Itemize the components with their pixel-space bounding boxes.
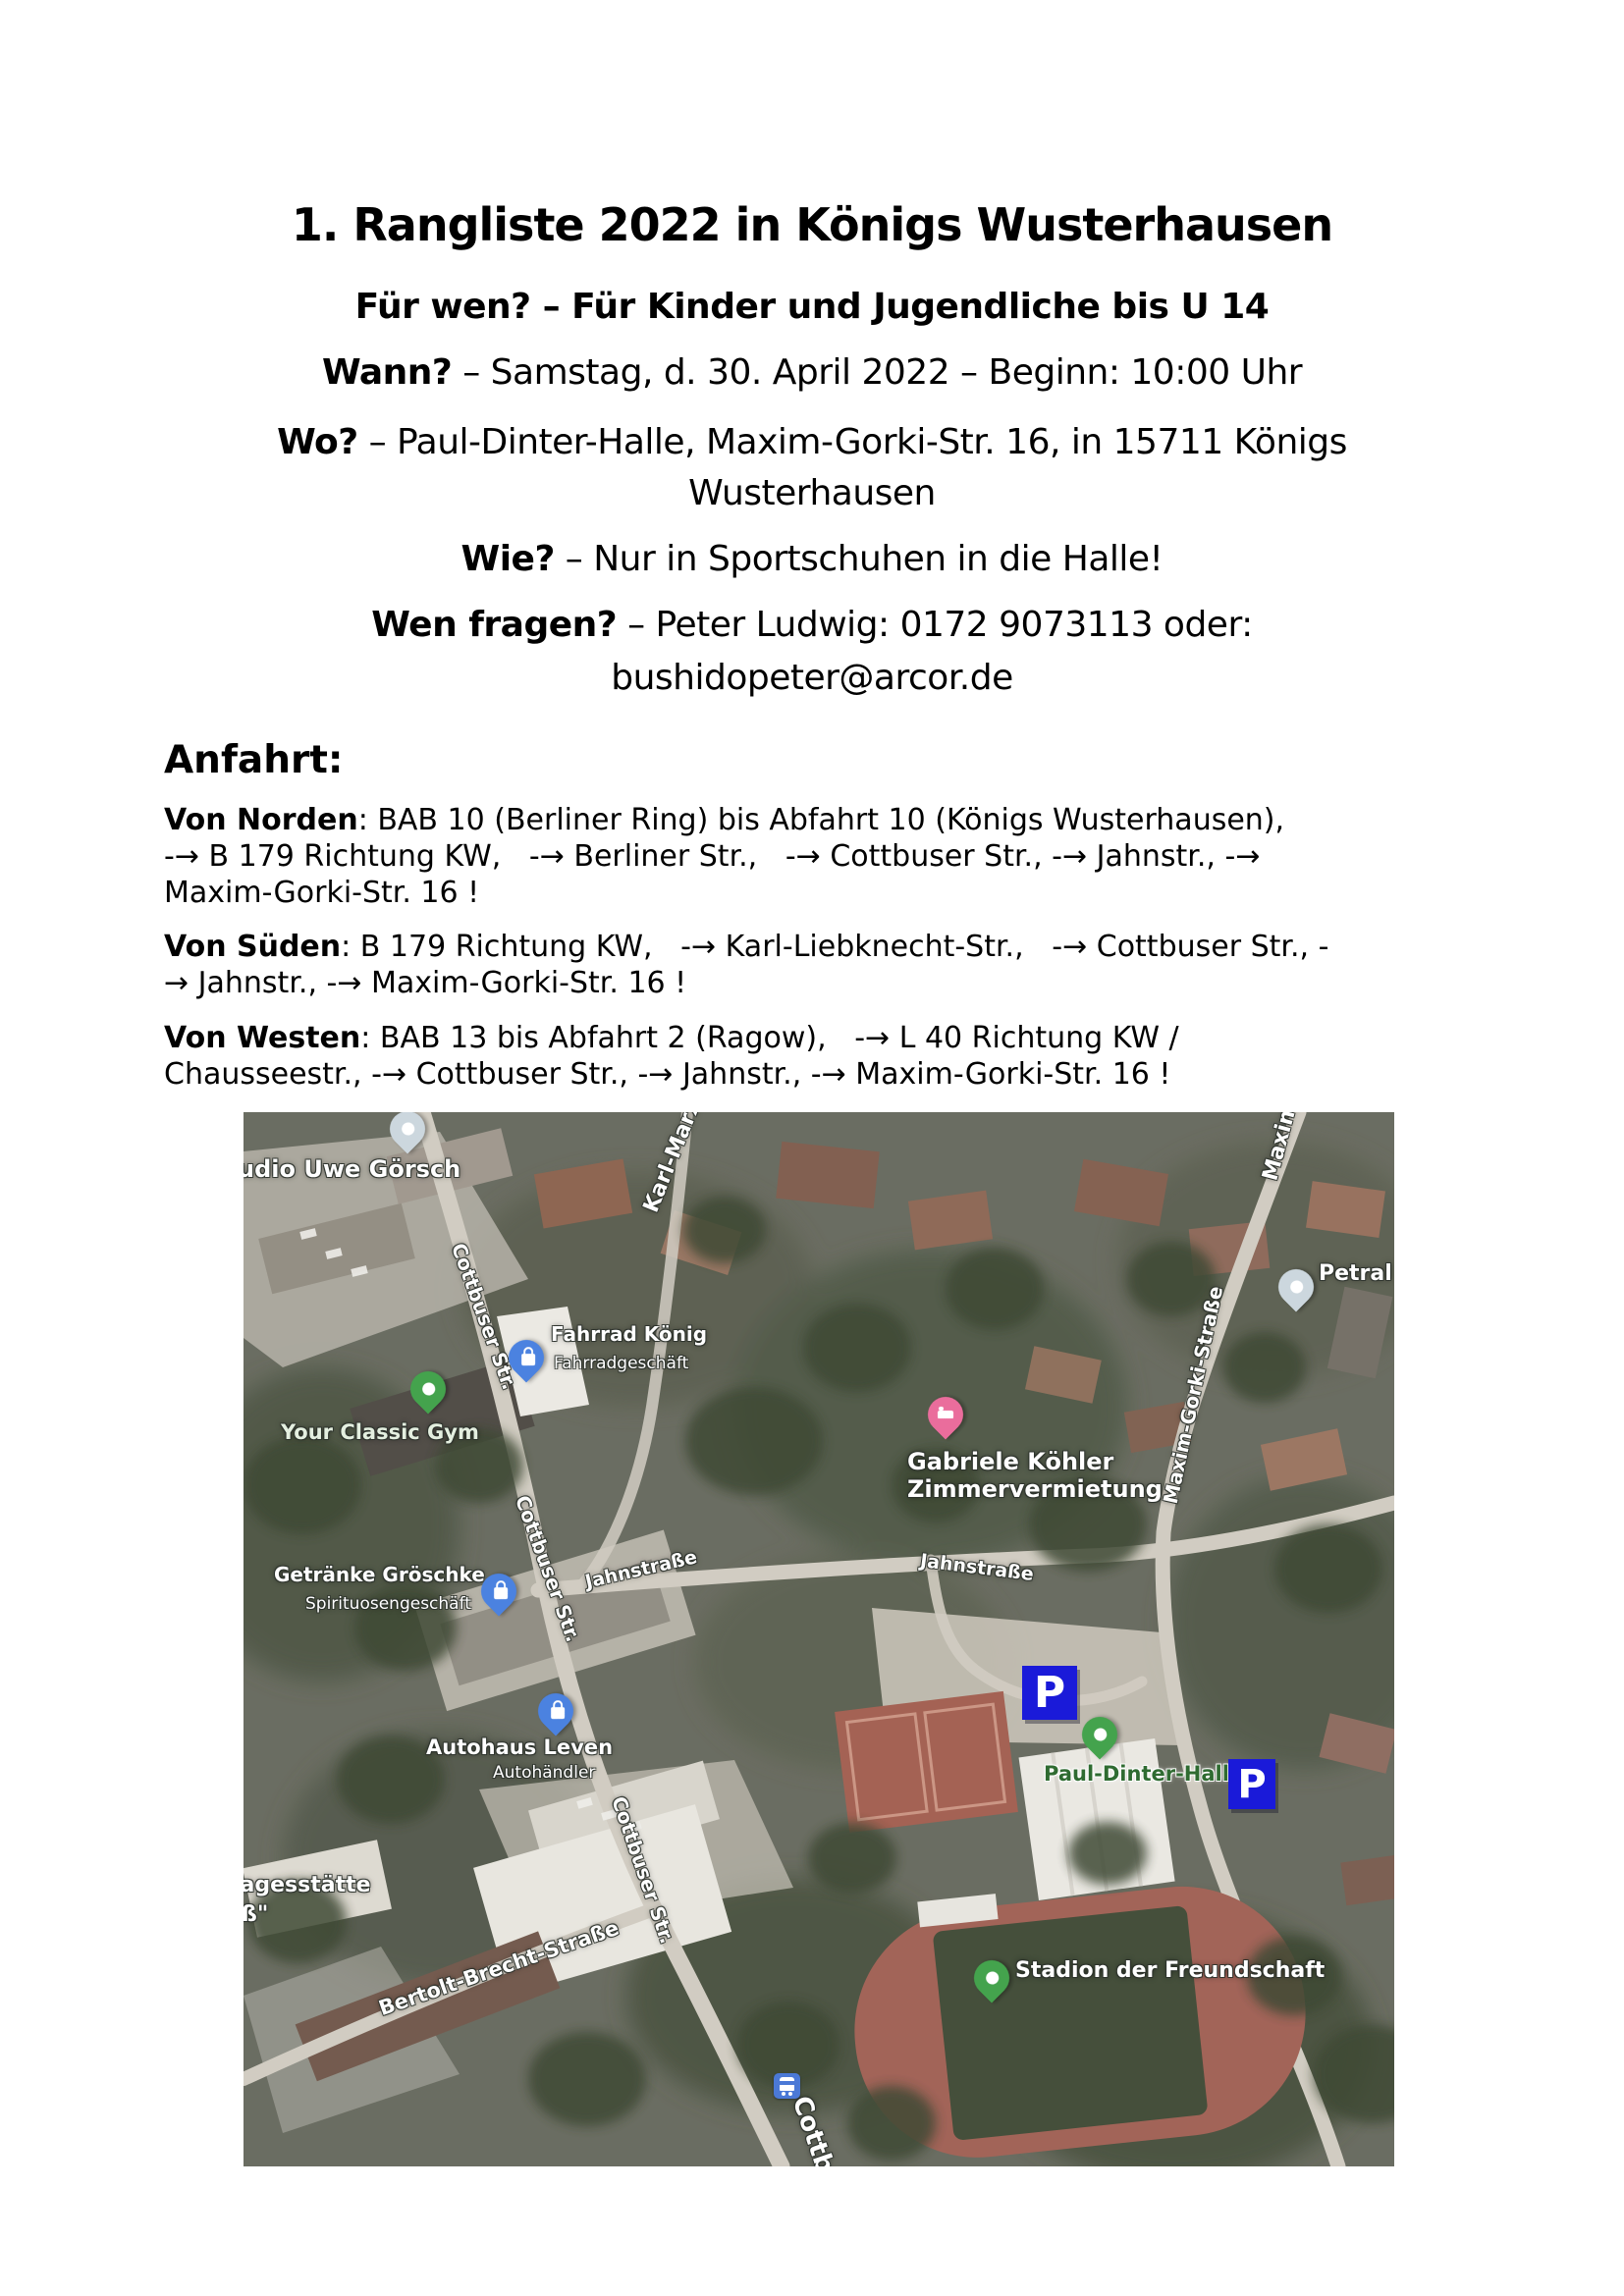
von-sueden-label: Von Süden [164, 930, 341, 964]
info-wie: Wie? – Nur in Sportschuhen in die Halle! [0, 539, 1624, 579]
info-wie-label: Wie? [461, 539, 555, 579]
place-label-paul-dinter-halle: Paul-Dinter-Halle [1044, 1762, 1243, 1786]
von-norden-line2: -→ B 179 Richtung KW, -→ Berliner Str., … [164, 838, 1284, 875]
place-label-your-classic-gym: Your Classic Gym [281, 1420, 479, 1444]
von-norden-line1: Von Norden: BAB 10 (Berliner Ring) bis A… [164, 802, 1284, 838]
info-wo: Wo? – Paul-Dinter-Halle, Maxim-Gorki-Str… [0, 422, 1624, 462]
subtitle-fuer-wen: Für wen? – Für Kinder und Jugendliche bi… [0, 287, 1624, 327]
parking-icon-2: P [1228, 1759, 1275, 1809]
directions-von-norden: Von Norden: BAB 10 (Berliner Ring) bis A… [164, 802, 1284, 911]
pin-dot-icon [1094, 1729, 1107, 1741]
von-sueden-text1: : B 179 Richtung KW, -→ Karl-Liebknecht-… [341, 930, 1328, 964]
place-label-kindertagesstaette-partial-2: ß" [244, 1902, 268, 1927]
shopping-bag-icon [494, 1587, 508, 1599]
place-label-studio-uwe-goersch: udio Uwe Görsch [244, 1155, 460, 1183]
place-label-kindertagesstaette-partial: tagesstätte [244, 1873, 371, 1897]
von-westen-line1: Von Westen: BAB 13 bis Abfahrt 2 (Ragow)… [164, 1020, 1179, 1056]
von-sueden-line1: Von Süden: B 179 Richtung KW, -→ Karl-Li… [164, 929, 1328, 965]
place-label-autohaus-leven: Autohaus Leven [426, 1735, 613, 1759]
satellite-map: Karl-Marx Maxim Maxim-Gorki-Straße Cottb… [244, 1112, 1394, 2166]
von-westen-line2: Chausseestr., -→ Cottbuser Str., -→ Jahn… [164, 1056, 1179, 1093]
info-wen-label: Wen fragen? [371, 605, 617, 645]
place-label-petral: Petral [1319, 1261, 1392, 1286]
info-wo-line2: Wusterhausen [0, 473, 1624, 513]
place-label-stadion-der-freundschaft: Stadion der Freundschaft [1015, 1958, 1325, 1983]
shopping-bag-icon [521, 1354, 535, 1365]
anfahrt-heading: Anfahrt: [164, 738, 343, 782]
place-label-gabriele-koehler: Gabriele Köhler [907, 1448, 1113, 1475]
info-wen-email: bushidopeter@arcor.de [0, 658, 1624, 698]
von-westen-text1: : BAB 13 bis Abfahrt 2 (Ragow), -→ L 40 … [360, 1021, 1178, 1055]
info-wo-label: Wo? [277, 422, 358, 462]
shopping-bag-icon [551, 1707, 565, 1719]
parking-icon-1: P [1022, 1666, 1077, 1720]
flyer-page: 1. Rangliste 2022 in Königs Wusterhausen… [0, 0, 1624, 2296]
place-label-autohaendler: Autohändler [493, 1763, 595, 1783]
info-wann: Wann? – Samstag, d. 30. April 2022 – Beg… [0, 352, 1624, 393]
page-title: 1. Rangliste 2022 in Königs Wusterhausen [0, 198, 1624, 251]
info-wo-text: – Paul-Dinter-Halle, Maxim-Gorki-Str. 16… [358, 422, 1347, 462]
info-wann-label: Wann? [322, 352, 452, 393]
pin-dot-icon [1290, 1281, 1303, 1294]
place-label-getraenke-groeschke: Getränke Gröschke [274, 1563, 485, 1586]
bus-stop-icon [774, 2073, 800, 2099]
pin-dot-icon [422, 1383, 435, 1396]
von-norden-line3: Maxim-Gorki-Str. 16 ! [164, 875, 1284, 911]
von-sueden-line2: → Jahnstr., -→ Maxim-Gorki-Str. 16 ! [164, 965, 1328, 1001]
place-label-fahrrad-koenig: Fahrrad König [551, 1322, 707, 1346]
directions-von-sueden: Von Süden: B 179 Richtung KW, -→ Karl-Li… [164, 929, 1328, 1001]
von-westen-label: Von Westen [164, 1021, 360, 1055]
info-wen: Wen fragen? – Peter Ludwig: 0172 9073113… [0, 605, 1624, 645]
pin-dot-icon [986, 1972, 999, 1985]
directions-von-westen: Von Westen: BAB 13 bis Abfahrt 2 (Ragow)… [164, 1020, 1179, 1093]
info-wann-text: – Samstag, d. 30. April 2022 – Beginn: 1… [452, 352, 1302, 393]
info-wie-text: – Nur in Sportschuhen in die Halle! [555, 539, 1164, 579]
info-wen-text: – Peter Ludwig: 0172 9073113 oder: [617, 605, 1253, 645]
place-label-fahrradgeschaeft: Fahrradgeschäft [554, 1354, 688, 1373]
pin-dot-icon [402, 1123, 414, 1136]
bed-icon [938, 1411, 953, 1418]
von-norden-label: Von Norden [164, 803, 358, 837]
von-norden-text1: : BAB 10 (Berliner Ring) bis Abfahrt 10 … [358, 803, 1284, 837]
place-label-zimmervermietung: Zimmervermietung [907, 1475, 1163, 1503]
place-label-spirituosengeschaeft: Spirituosengeschäft [305, 1594, 471, 1614]
